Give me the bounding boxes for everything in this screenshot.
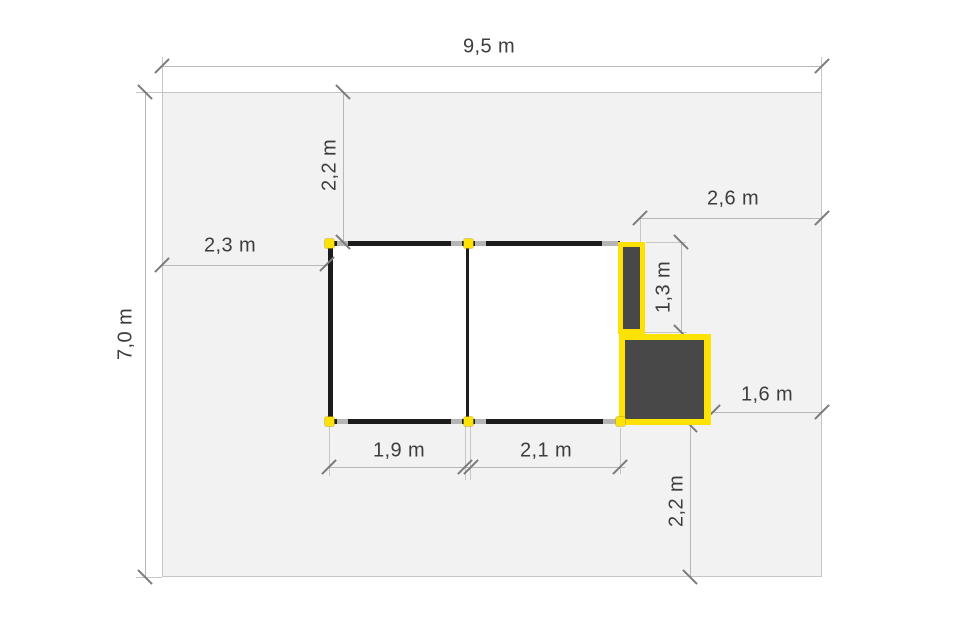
dim-label-left-module-width: 1,9 m xyxy=(373,440,425,463)
dimension-line xyxy=(329,467,468,468)
wall-bottom xyxy=(328,419,620,424)
dim-label-annex-height: 1,3 m xyxy=(653,261,676,313)
extension-line xyxy=(136,577,162,578)
dim-label-top-right-clearance: 2,6 m xyxy=(707,188,759,211)
building-floor-area xyxy=(328,241,620,424)
dim-label-right-module-width: 2,1 m xyxy=(520,440,572,463)
extension-line xyxy=(136,92,162,93)
wall-joint-segment xyxy=(337,419,348,424)
dimension-line xyxy=(711,412,822,413)
corner-marker xyxy=(616,417,625,426)
dim-label-plot-depth: 7,0 m xyxy=(115,308,138,360)
dimension-line xyxy=(343,92,344,242)
corner-marker xyxy=(325,239,334,248)
dimension-line xyxy=(690,425,691,577)
dim-label-left-setback: 2,3 m xyxy=(204,235,256,258)
extension-line xyxy=(640,219,641,243)
wall-middle xyxy=(466,241,469,424)
wall-joint-segment xyxy=(475,419,486,424)
dimension-line xyxy=(640,218,822,219)
dim-label-right-clearance: 1,6 m xyxy=(741,384,793,407)
extension-line xyxy=(329,426,330,476)
dimension-line xyxy=(468,467,625,468)
floor-plan-canvas: 9,5 m 7,0 m 2,2 m 2,3 m 2,6 m xyxy=(0,0,960,640)
extension-line xyxy=(821,57,822,92)
wall-joint-segment xyxy=(602,241,618,246)
wall-joint-segment xyxy=(475,241,486,246)
dimension-line xyxy=(162,66,822,67)
annex-square-fill xyxy=(625,340,704,419)
dimension-line xyxy=(145,92,146,577)
dim-label-plot-width: 9,5 m xyxy=(463,36,515,59)
wall-joint-segment xyxy=(451,241,462,246)
corner-marker xyxy=(464,417,473,426)
wall-left xyxy=(328,241,333,424)
dim-label-bottom-clearance: 2,2 m xyxy=(666,475,689,527)
corner-marker xyxy=(325,417,334,426)
wall-top xyxy=(328,241,620,246)
annex-strip-fill xyxy=(623,247,640,329)
corner-marker xyxy=(464,239,473,248)
dim-label-top-setback: 2,2 m xyxy=(319,139,342,191)
dimension-line xyxy=(162,265,328,266)
dimension-line xyxy=(681,242,682,332)
extension-line xyxy=(470,426,471,480)
wall-joint-segment xyxy=(451,419,462,424)
